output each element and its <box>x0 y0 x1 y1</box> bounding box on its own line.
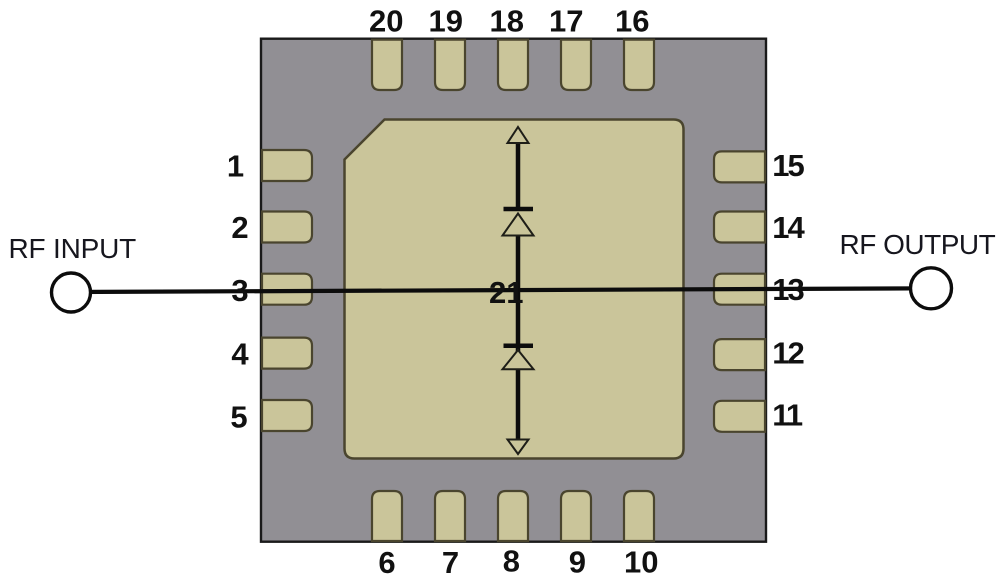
svg-text:20: 20 <box>369 4 403 39</box>
svg-text:4: 4 <box>231 337 249 372</box>
svg-text:15: 15 <box>772 148 804 183</box>
svg-text:14: 14 <box>772 210 805 245</box>
svg-text:5: 5 <box>230 400 247 435</box>
svg-text:21: 21 <box>489 275 523 310</box>
svg-text:19: 19 <box>428 4 462 39</box>
svg-text:2: 2 <box>231 210 248 245</box>
svg-text:3: 3 <box>231 273 248 308</box>
svg-text:RF OUTPUT: RF OUTPUT <box>840 229 996 260</box>
svg-text:1: 1 <box>227 149 244 184</box>
svg-text:16: 16 <box>615 4 649 39</box>
svg-text:10: 10 <box>624 545 658 578</box>
svg-text:13: 13 <box>772 272 804 307</box>
svg-text:8: 8 <box>503 544 520 578</box>
svg-text:6: 6 <box>378 545 395 578</box>
svg-text:17: 17 <box>549 4 583 39</box>
svg-text:12: 12 <box>772 336 803 371</box>
svg-text:18: 18 <box>490 4 524 39</box>
svg-text:9: 9 <box>569 545 586 578</box>
svg-text:RF INPUT: RF INPUT <box>9 233 137 264</box>
svg-text:11: 11 <box>772 397 803 432</box>
svg-text:7: 7 <box>442 545 459 578</box>
